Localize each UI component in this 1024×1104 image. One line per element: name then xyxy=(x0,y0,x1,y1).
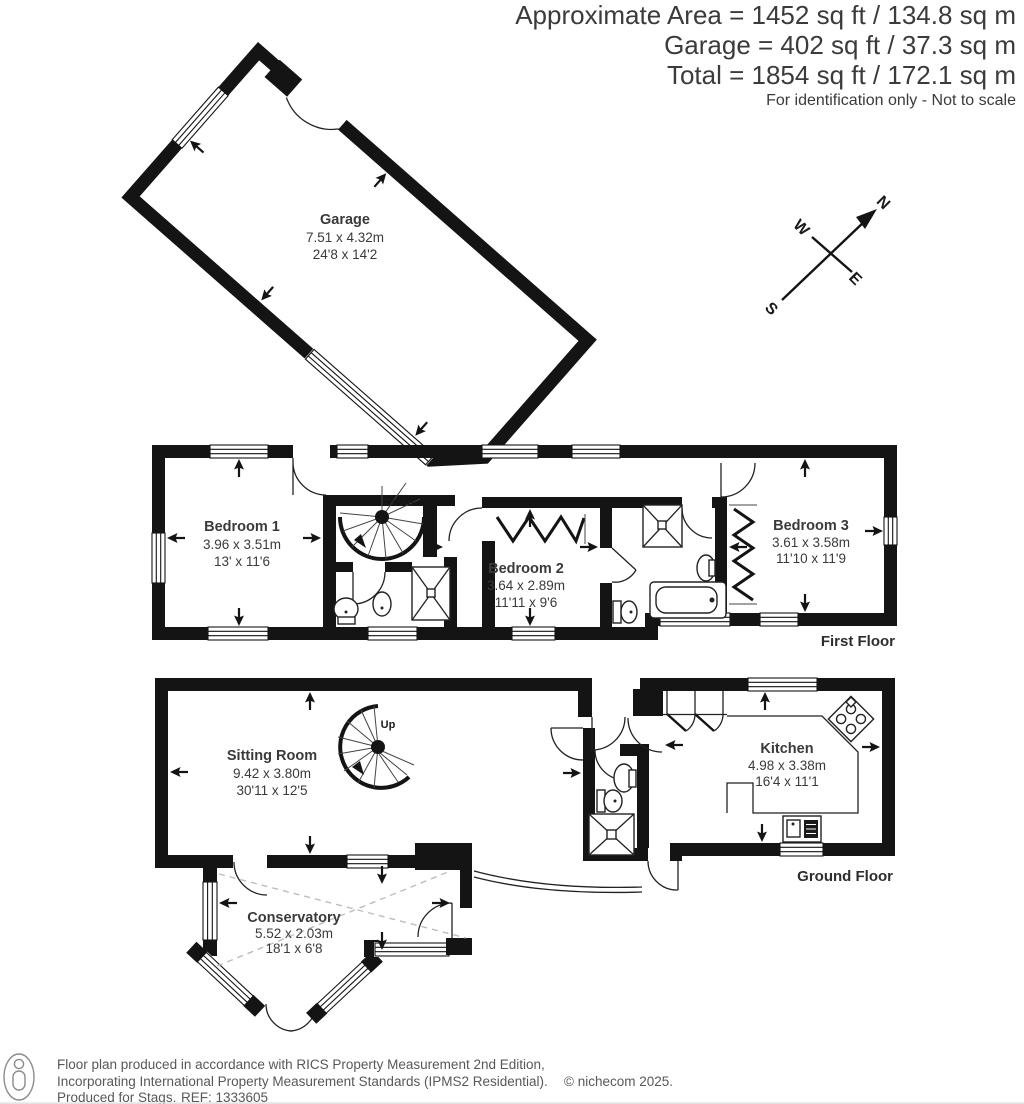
sitting-room-name: Sitting Room xyxy=(227,748,317,764)
compass-west-label: W xyxy=(790,217,813,240)
footer-produced-for: Produced for Stags. xyxy=(57,1090,176,1104)
hob-fixture xyxy=(828,696,873,741)
sitting-room-metric: 9.42 x 3.80m xyxy=(233,766,311,781)
footer: Floor plan produced in accordance with R… xyxy=(0,1054,1024,1104)
bathtub-fixture xyxy=(650,582,726,618)
window xyxy=(203,882,218,940)
bedroom1-name: Bedroom 1 xyxy=(204,519,280,535)
kitchen-metric: 4.98 x 3.38m xyxy=(748,758,826,773)
conservatory-plan: Conservatory 5.52 x 2.03m 18'1 x 6'8 xyxy=(186,862,472,1031)
door-swing xyxy=(234,862,267,895)
compass-east-label: E xyxy=(845,269,865,289)
toilet-fixture xyxy=(373,592,391,616)
window xyxy=(482,445,538,459)
spiral-staircase-up xyxy=(338,706,414,788)
bedroom2-label: Bedroom 2 3.64 x 2.89m 11'11 x 9'6 xyxy=(487,561,565,610)
garage-plan xyxy=(120,41,598,496)
window xyxy=(780,843,823,857)
bedroom2-imperial: 11'11 x 9'6 xyxy=(495,595,557,610)
window xyxy=(337,445,368,459)
compass-south-label: S xyxy=(761,299,781,319)
footer-ref: REF: 1333605 xyxy=(181,1090,268,1104)
bedroom1-metric: 3.96 x 3.51m xyxy=(203,537,281,552)
garage-area-text: Garage = 402 sq ft / 37.3 sq m xyxy=(664,30,1016,60)
measure-arrow xyxy=(257,284,276,304)
garage-name: Garage xyxy=(320,212,370,228)
wardrobe xyxy=(734,509,753,600)
stairs-down-label: Down xyxy=(384,497,414,509)
window xyxy=(572,445,620,459)
spiral-staircase-down xyxy=(340,483,424,559)
curved-porch-glazing xyxy=(474,871,642,892)
bedroom2-name: Bedroom 2 xyxy=(488,561,564,577)
shower-fixture xyxy=(412,567,450,620)
sitting-room-label: Sitting Room 9.42 x 3.80m 30'11 x 12'5 xyxy=(227,748,317,798)
compass-rose-icon: N W E S xyxy=(761,193,893,319)
conservatory-label: Conservatory 5.52 x 2.03m 18'1 x 6'8 xyxy=(247,910,340,956)
bedroom2-metric: 3.64 x 2.89m xyxy=(487,578,565,593)
person-icon xyxy=(4,1054,34,1100)
shower-fixture xyxy=(643,505,682,547)
garage-window xyxy=(171,86,228,148)
bedroom3-metric: 3.61 x 3.58m xyxy=(772,535,850,550)
window xyxy=(306,951,383,1024)
floorplan-drawing: Approximate Area = 1452 sq ft / 134.8 sq… xyxy=(0,0,1024,1104)
window xyxy=(368,627,417,641)
bedroom1-imperial: 13' x 11'6 xyxy=(214,554,270,569)
french-doors-swing xyxy=(266,1004,316,1031)
window xyxy=(374,942,450,957)
window xyxy=(884,517,898,545)
garage-metric: 7.51 x 4.32m xyxy=(306,230,384,245)
window xyxy=(208,627,268,641)
shower-fixture xyxy=(589,814,634,855)
measure-arrow xyxy=(371,170,390,190)
toilet-fixture xyxy=(613,601,621,623)
window xyxy=(760,613,798,627)
header-area-summary: Approximate Area = 1452 sq ft / 134.8 sq… xyxy=(515,0,1016,109)
kitchen-label: Kitchen 4.98 x 3.38m 16'4 x 11'1 xyxy=(748,741,826,789)
bedroom3-label: Bedroom 3 3.61 x 3.58m 11'10 x 11'9 xyxy=(772,518,850,566)
bedroom1-label: Bedroom 1 3.96 x 3.51m 13' x 11'6 xyxy=(203,519,281,569)
window xyxy=(512,627,555,641)
ground-floor-label: Ground Floor xyxy=(797,868,893,885)
conservatory-metric: 5.52 x 2.03m xyxy=(255,926,333,941)
sitting-room-imperial: 30'11 x 12'5 xyxy=(237,783,308,798)
window xyxy=(210,445,268,459)
window xyxy=(152,533,166,583)
disclaimer-text: For identification only - Not to scale xyxy=(766,92,1016,109)
footer-copyright: © nichecom 2025. xyxy=(564,1074,673,1089)
footer-line1: Floor plan produced in accordance with R… xyxy=(57,1057,545,1072)
footer-line2: Incorporating International Property Mea… xyxy=(57,1074,548,1089)
bedroom3-imperial: 11'10 x 11'9 xyxy=(776,551,846,566)
kitchen-imperial: 16'4 x 11'1 xyxy=(755,774,818,789)
wardrobe xyxy=(497,517,584,541)
stairs-up-label: Up xyxy=(381,719,396,731)
kitchen-name: Kitchen xyxy=(760,741,813,757)
garage-label: Garage 7.51 x 4.32m 24'8 x 14'2 xyxy=(306,212,384,262)
floorplan-page: Approximate Area = 1452 sq ft / 134.8 sq… xyxy=(0,0,1024,1104)
conservatory-name: Conservatory xyxy=(247,910,340,926)
ground-floor-plan: Up Sitting Room 9.42 x 3.80m 30'11 x 12'… xyxy=(155,678,895,893)
window xyxy=(186,942,265,1017)
first-floor-label: First Floor xyxy=(821,633,895,650)
measure-arrow xyxy=(412,419,431,439)
total-area-text: Total = 1854 sq ft / 172.1 sq m xyxy=(667,60,1016,90)
garage-imperial: 24'8 x 14'2 xyxy=(313,247,377,262)
window xyxy=(748,678,817,692)
bedroom3-name: Bedroom 3 xyxy=(773,518,849,534)
first-floor-plan: Down xyxy=(152,444,898,650)
kitchen-sink-fixture xyxy=(783,816,821,842)
conservatory-imperial: 18'1 x 6'8 xyxy=(266,941,323,956)
approximate-area-text: Approximate Area = 1452 sq ft / 134.8 sq… xyxy=(515,0,1016,30)
